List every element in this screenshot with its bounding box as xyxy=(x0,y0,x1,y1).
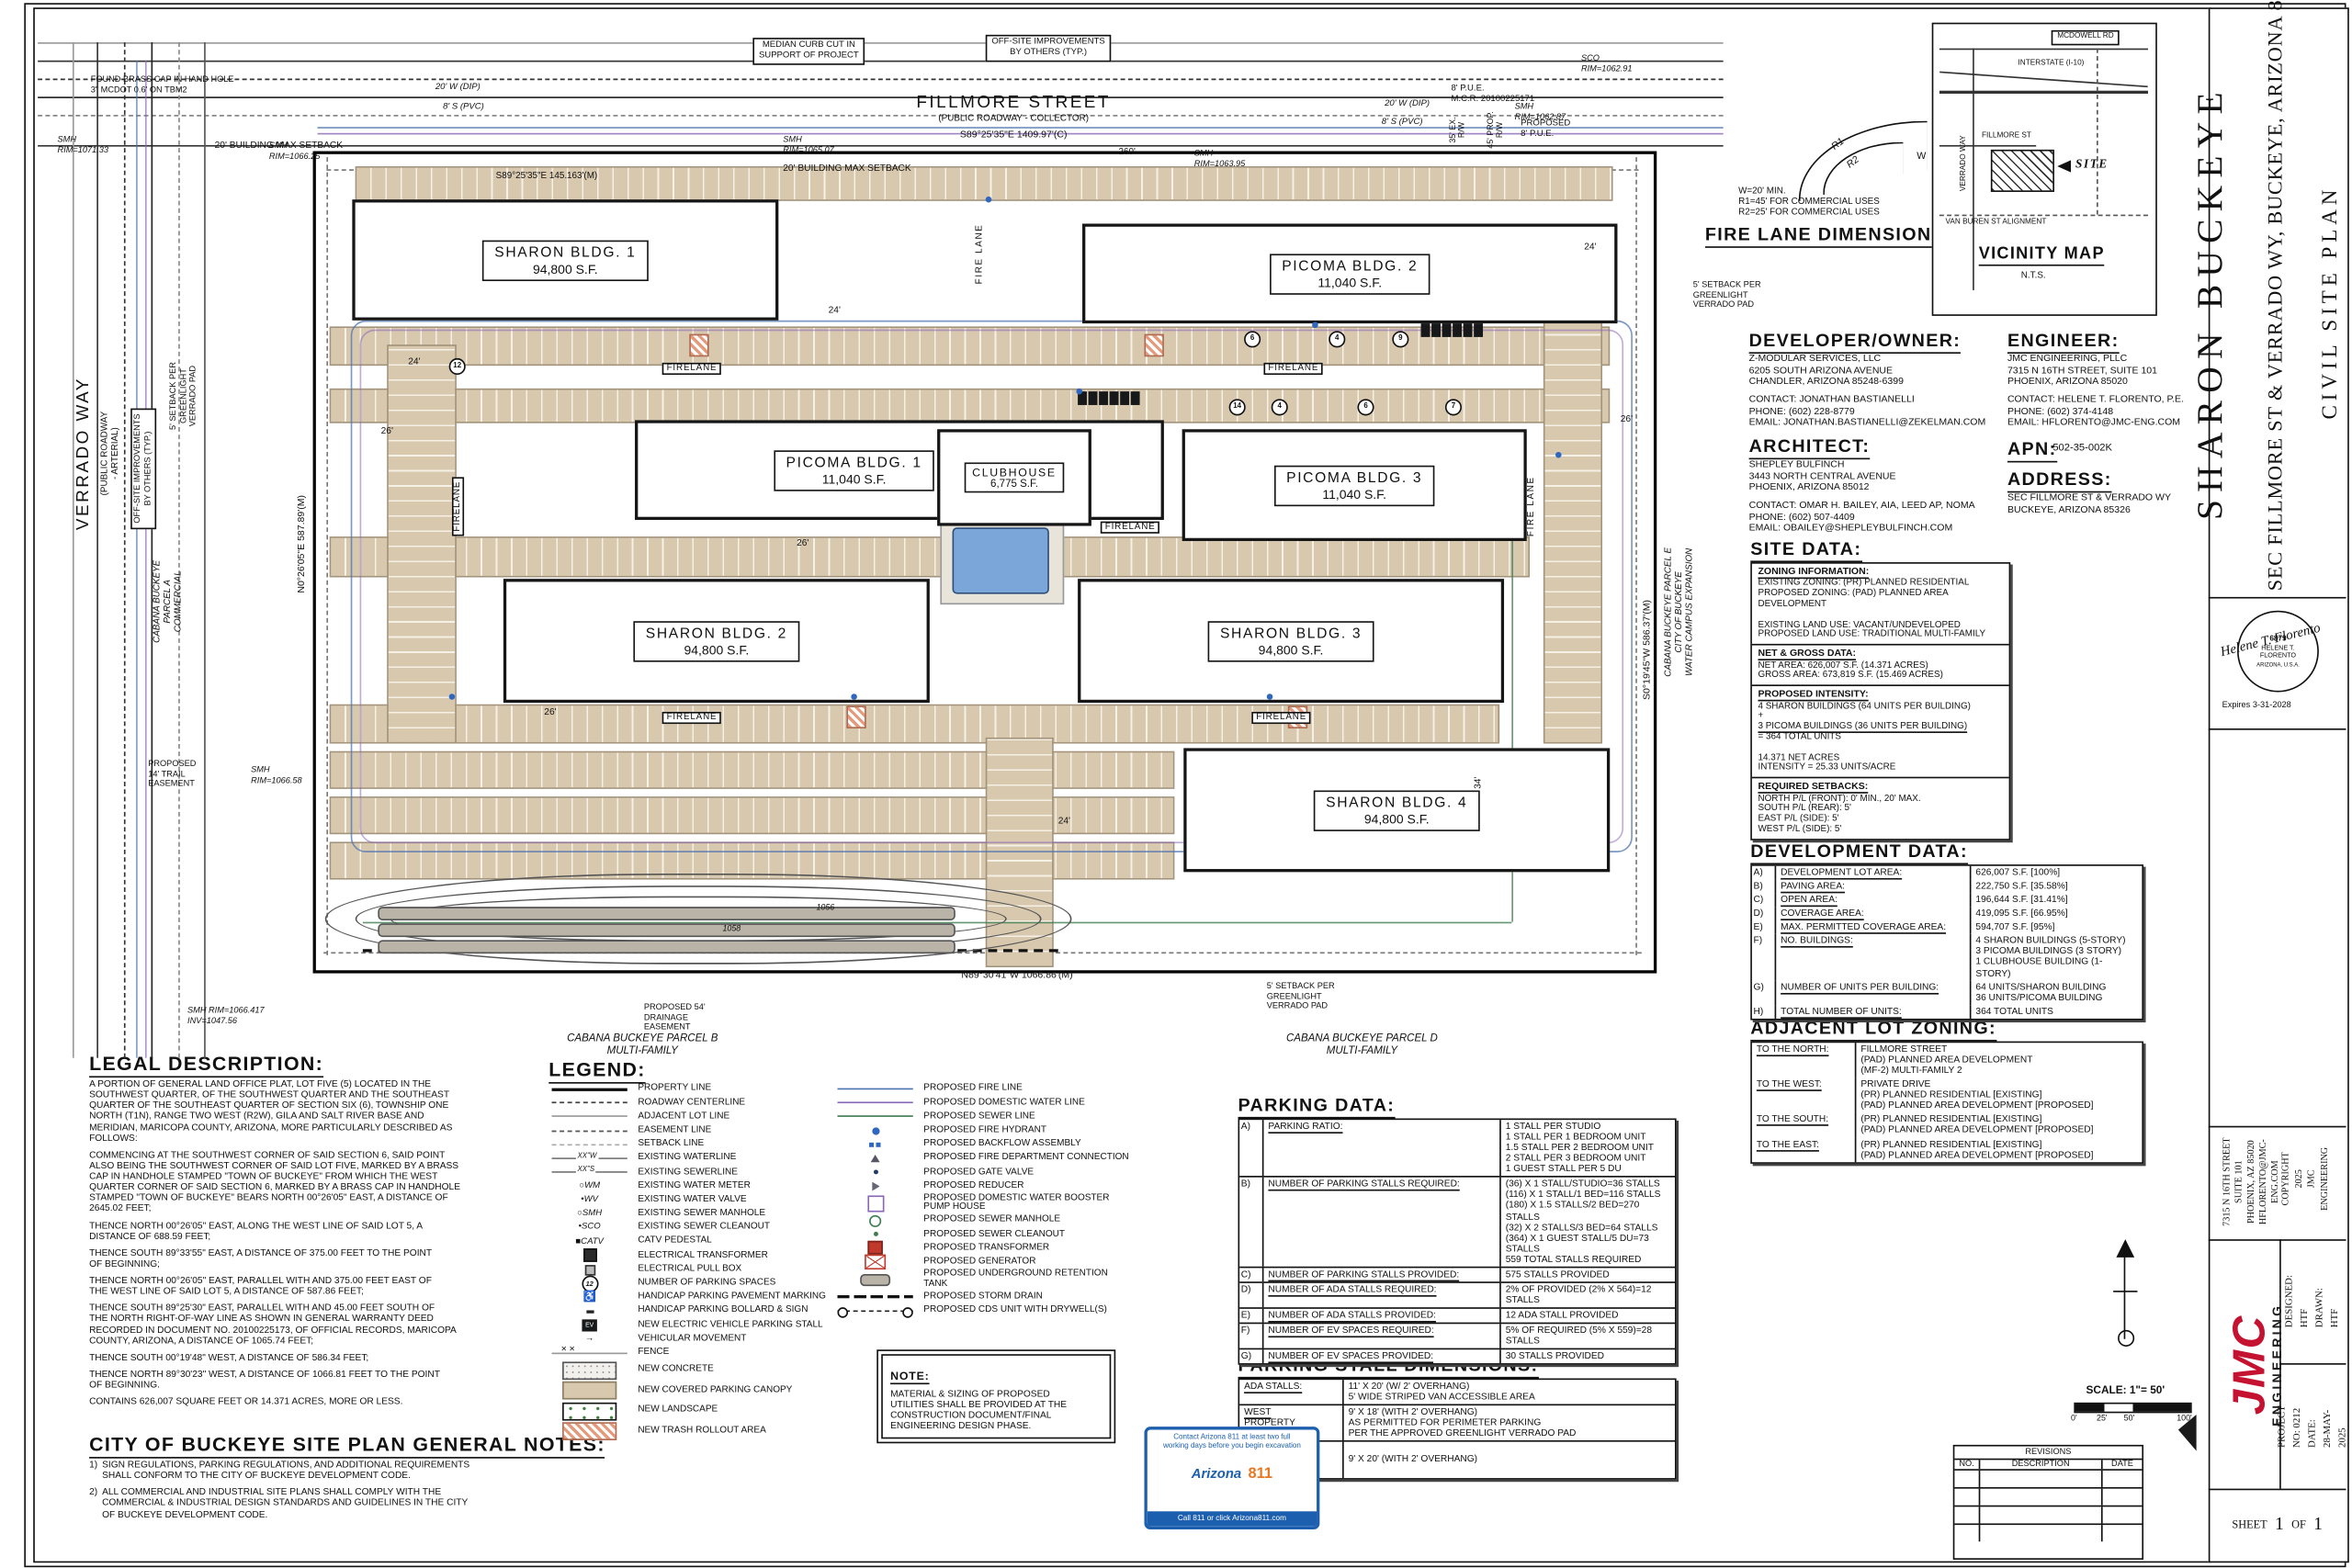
building-sharon-4: SHARON BLDG. 494,800 S.F. xyxy=(1183,748,1610,872)
logo-mountain-icon xyxy=(2178,1415,2197,1450)
scale-tick: 50' xyxy=(2124,1415,2135,1424)
site-data-heading: SITE DATA: xyxy=(1750,538,1861,562)
legend-row: PROPOSED TRANSFORMER xyxy=(834,1241,1190,1255)
legend-row: PROPOSED FIRE LINE xyxy=(834,1082,1190,1096)
title-divider xyxy=(2209,1239,2346,1241)
developer-address: Z-MODULAR SERVICES, LLC 6205 SOUTH ARIZO… xyxy=(1749,354,1904,388)
new-concrete-swatch xyxy=(562,1361,616,1380)
vicinity-title: VICINITY MAP xyxy=(1979,245,2105,266)
ev-stall-symbol: EV xyxy=(582,1319,596,1331)
plan-sheet: 1056 1058 SHARON BLDG. 194,800 S.F. PICO… xyxy=(0,0,2352,1568)
water-meter-symbol: ○WM xyxy=(579,1181,600,1190)
setback-label: 5' SETBACK PER GREENLIGHT VERRADO PAD xyxy=(1267,982,1335,1012)
plan-callout: OFF-SITE IMPROVEMENTS BY OTHERS (TYP.) xyxy=(130,408,156,529)
scale-tick: 25' xyxy=(2097,1415,2108,1424)
firm-address: 7315 N 16TH STREET SUITE 101 PHOENIX, AZ… xyxy=(2222,1132,2282,1232)
map-label: FILLMORE ST xyxy=(1982,133,2031,142)
existing-waterline-symbol: XX"W xyxy=(552,1157,628,1159)
building-label: PICOMA BLDG. 111,040 S.F. xyxy=(774,449,933,490)
logo-jmc-text: JMC xyxy=(2225,1314,2275,1415)
backflow-assembly-symbol xyxy=(868,1143,882,1147)
building-label: PICOMA BLDG. 211,040 S.F. xyxy=(1270,254,1430,294)
developer-heading: DEVELOPER/OWNER: xyxy=(1749,330,1962,354)
building-clubhouse: CLUBHOUSE6,775 S.F. xyxy=(937,429,1091,525)
row-label: 35' EX. R/W xyxy=(1449,117,1468,142)
firelane-label: FIRELANE xyxy=(1263,363,1323,375)
developer-contact: CONTACT: JONATHAN BASTIANELLI PHONE: (60… xyxy=(1749,394,1986,428)
arizona811-logo: Arizona 811 xyxy=(1148,1458,1317,1485)
stall-count: 4 xyxy=(1329,331,1345,347)
gate-valve-symbol xyxy=(873,1170,877,1175)
legend-row: PROPOSED CDS UNIT WITH DRYWELL(S) xyxy=(834,1303,1190,1317)
table-row: D)NUMBER OF ADA STALLS REQUIRED:2% OF PR… xyxy=(1239,1281,1675,1307)
map-road xyxy=(1973,49,1974,290)
road-line xyxy=(96,42,98,1058)
utility-label: 8' S (PVC) xyxy=(1382,118,1423,128)
utility-label: SMH RIM=1066.417 INV=1047.56 xyxy=(187,1007,265,1027)
dim-label: 34' xyxy=(1473,777,1484,789)
legend-row: NEW TRASH ROLLOUT AREA xyxy=(548,1421,919,1441)
firelane-label: FIRE LANE xyxy=(1528,476,1539,536)
easement-line-symbol xyxy=(552,1130,628,1132)
existing-sewerline-symbol: XX"S xyxy=(552,1171,628,1173)
map-label: INTERSTATE (I-10) xyxy=(2018,61,2084,70)
parcel-label: CABANA BUCKEYE PARCEL B MULTI-FAMILY xyxy=(544,1033,741,1058)
road-line xyxy=(204,42,206,1058)
water-valve-symbol: •WV xyxy=(581,1196,598,1205)
project-no-date: PROJECT NO: 0212 DATE: 28-MAY-2025 xyxy=(2276,1405,2350,1448)
title-divider xyxy=(2209,597,2346,599)
seal-expires: Expires 3-31-2028 xyxy=(2222,701,2291,710)
firelane-label: FIRELANE xyxy=(452,477,464,536)
dim-label: 26' xyxy=(544,707,556,718)
utility-label: 8' S (PVC) xyxy=(443,103,484,113)
building-label: SHARON BLDG. 194,800 S.F. xyxy=(482,240,649,280)
legend-row: EVNEW ELECTRIC VEHICLE PARKING STALL xyxy=(548,1318,919,1332)
utility-label: 20' W (DIP) xyxy=(1385,100,1430,110)
scale-tick: 0' xyxy=(2071,1415,2077,1424)
electrical-pull-box-symbol xyxy=(584,1264,595,1275)
utility-label: SMH RIM=1066.25 xyxy=(269,142,321,163)
trash-rollout-area xyxy=(689,334,708,357)
revision-row xyxy=(1954,1525,2142,1541)
setback-label: 20' BUILDING MAX SETBACK xyxy=(783,164,910,175)
bearing-label: N89°30'41"W 1066.86'(M) xyxy=(961,970,1072,981)
building-label: SHARON BLDG. 294,800 S.F. xyxy=(634,620,800,660)
table-row: E)MAX. PERMITTED COVERAGE AREA:594,707 S… xyxy=(1752,920,2142,934)
utility-label: SMH RIM=1065.07 xyxy=(783,136,834,156)
fire-hydrant-icon xyxy=(986,197,992,203)
scale-bar xyxy=(2074,1403,2191,1414)
building-picoma-2: PICOMA BLDG. 211,040 S.F. xyxy=(1082,224,1617,324)
title-divider xyxy=(2279,1363,2346,1365)
proposed-fire-line xyxy=(318,127,1724,129)
table-row: B)NUMBER OF PARKING STALLS REQUIRED:(36)… xyxy=(1239,1177,1675,1267)
legend-row: NEW CONCRETE xyxy=(548,1359,919,1380)
retention-tank xyxy=(378,923,955,937)
vehicular-movement-symbol: → xyxy=(585,1335,594,1344)
dim-label: 26' xyxy=(1621,414,1633,425)
bearing-label: S89°25'35"E 1409.97'(C) xyxy=(888,130,1137,141)
architect-contact: CONTACT: OMAR H. BAILEY, AIA, LEED AP, N… xyxy=(1749,501,1975,535)
parking-data-heading: PARKING DATA: xyxy=(1238,1094,1396,1118)
easement-label: PROPOSED 14' TRAIL EASEMENT xyxy=(148,761,196,791)
general-notes-heading: CITY OF BUCKEYE SITE PLAN GENERAL NOTES: xyxy=(89,1433,605,1459)
note-box: NOTE: MATERIAL & SIZING OF PROPOSED UTIL… xyxy=(881,1354,1111,1438)
proposed-domestic-water-line-symbol xyxy=(837,1102,912,1104)
building-label: PICOMA BLDG. 311,040 S.F. xyxy=(1274,465,1434,505)
proposed-sewer-line-symbol xyxy=(837,1116,912,1118)
apn-label: APN: xyxy=(2007,438,2057,462)
fence-symbol: ✕ ✕ xyxy=(552,1352,628,1354)
table-row: ADA STALLS:11' X 20' (W/ 2' OVERHANG) 5'… xyxy=(1239,1380,1675,1404)
catv-pedestal-symbol: ■CATV xyxy=(575,1237,603,1247)
revision-row xyxy=(1954,1506,2142,1525)
firelane-label: FIRELANE xyxy=(662,363,722,375)
map-road xyxy=(1939,215,2148,217)
contour-label: 1056 xyxy=(816,904,834,913)
dim-label: 26' xyxy=(381,426,393,437)
legend-row: NEW LANDSCAPE xyxy=(548,1401,919,1421)
legend-right-column: PROPOSED FIRE LINE PROPOSED DOMESTIC WAT… xyxy=(834,1082,1190,1317)
map-road xyxy=(1939,91,2148,94)
revision-row xyxy=(1954,1489,2142,1507)
building-sharon-2: SHARON BLDG. 294,800 S.F. xyxy=(503,579,930,703)
legend-row: PROPOSED UNDERGROUND RETENTION TANK xyxy=(834,1269,1190,1290)
trash-rollout-swatch xyxy=(562,1422,616,1440)
map-road xyxy=(1939,145,2036,147)
legend-row: ✕ ✕FENCE xyxy=(548,1346,919,1359)
fire-hydrant-icon xyxy=(1555,452,1562,458)
table-row: A)DEVELOPMENT LOT AREA:626,007 S.F. [100… xyxy=(1752,866,2142,880)
map-label: VAN BUREN ST ALIGNMENT xyxy=(1946,220,2047,229)
sewer-manhole-symbol: ○SMH xyxy=(577,1210,602,1219)
table-row: F)NUMBER OF EV SPACES REQUIRED:5% OF REQ… xyxy=(1239,1323,1675,1348)
ev-stalls xyxy=(1078,391,1139,405)
map-road xyxy=(1939,49,2148,51)
plan-callout: MEDIAN CURB CUT IN SUPPORT OF PROJECT xyxy=(752,38,865,64)
setback-label: 5' SETBACK PER GREENLIGHT VERRADO PAD xyxy=(169,362,199,430)
fire-hydrant-symbol xyxy=(872,1127,879,1134)
firelane-label: FIRELANE xyxy=(1101,522,1160,534)
road-line xyxy=(178,42,180,1058)
title-text: SHARON BUCKEYE SEC FILLMORE ST & VERRADO… xyxy=(2164,14,2352,592)
setback-label: 5' SETBACK PER GREENLIGHT VERRADO PAD xyxy=(1693,281,1761,311)
vicinity-nts: N.T.S. xyxy=(2021,272,2046,283)
building-sharon-3: SHARON BLDG. 394,800 S.F. xyxy=(1078,579,1504,703)
row-label: 45' PROP. R/W xyxy=(1487,111,1506,148)
retention-tank xyxy=(378,907,955,920)
bearing-label: N0°26'05"E 587.89'(M) xyxy=(297,495,308,593)
dim-label: 24' xyxy=(1584,242,1596,253)
fire-lane-heading: FIRE LANE DIMENSIONS xyxy=(1705,224,1945,248)
roadway-centerline-symbol xyxy=(552,1102,628,1104)
map-road xyxy=(1939,72,2148,87)
legend-row: PROPOSED STORM DRAIN xyxy=(834,1290,1190,1303)
bearing-label: S0°19'45"W 586.37'(M) xyxy=(1642,600,1653,700)
proposed-sewer-cleanout-symbol xyxy=(873,1232,877,1236)
project-title: SHARON BUCKEYE xyxy=(2191,14,2232,592)
legend-row: PROPOSED FIRE HYDRANT xyxy=(834,1123,1190,1137)
setback-line xyxy=(1635,157,1637,955)
firelane-label: FIRELANE xyxy=(662,712,722,724)
table-row: TO THE SOUTH:(PR) PLANNED RESIDENTIAL [E… xyxy=(1752,1113,2142,1138)
legend-row: PROPOSED REDUCER xyxy=(834,1179,1190,1193)
table-row: TO THE WEST:PRIVATE DRIVE (PR) PLANNED R… xyxy=(1752,1077,2142,1112)
street-type: (PUBLIC ROADWAY - ARTERIAL) xyxy=(101,412,122,496)
table-row: A)PARKING RATIO:1 STALL PER STUDIO 1 STA… xyxy=(1239,1120,1675,1176)
proposed-transformer-symbol xyxy=(867,1242,882,1256)
table-row: H)TOTAL NUMBER OF UNITS:364 TOTAL UNITS xyxy=(1752,1005,2142,1019)
parcel-label: CABANA BUCKEYE PARCEL A COMMERCIAL xyxy=(153,560,186,643)
proposed-fire-line xyxy=(136,61,138,1058)
intensity-section: PROPOSED INTENSITY: 4 SHARON BUILDINGS (… xyxy=(1752,685,2009,778)
setbacks-section: REQUIRED SETBACKS: NORTH P/L (FRONT): 0'… xyxy=(1752,777,2009,839)
site-data-table: ZONING INFORMATION: EXISTING ZONING: (PR… xyxy=(1750,562,2010,840)
proposed-water-line xyxy=(145,61,147,1058)
engineer-address: JMC ENGINEERING, PLLC 7315 N 16TH STREET… xyxy=(2007,354,2157,388)
pool xyxy=(953,527,1049,593)
proposed-fire-line-symbol xyxy=(837,1089,912,1090)
street-name: VERRADO WAY xyxy=(74,377,95,530)
table-row: B)PAVING AREA:222,750 S.F. [35.58%] xyxy=(1752,880,2142,894)
building-picoma-3: PICOMA BLDG. 311,040 S.F. xyxy=(1182,429,1527,541)
utility-label: SMH RIM=1063.95 xyxy=(1194,150,1246,170)
table-row: C)NUMBER OF PARKING STALLS PROVIDED:575 … xyxy=(1239,1266,1675,1281)
property-line-symbol xyxy=(552,1088,628,1090)
map-label: MCDOWELL RD xyxy=(2052,30,2120,45)
table-row: G)NUMBER OF UNITS PER BUILDING:64 UNITS/… xyxy=(1752,980,2142,1005)
building-label: SHARON BLDG. 394,800 S.F. xyxy=(1208,620,1374,660)
engineer-heading: ENGINEER: xyxy=(2007,330,2120,354)
underground-retention-tank-symbol xyxy=(860,1273,890,1285)
site-arrow-icon xyxy=(2057,160,2071,172)
sheet-number-row: SHEET 1 OF 1 xyxy=(2209,1489,2346,1560)
fire-hydrant-icon xyxy=(1267,694,1273,700)
revision-row xyxy=(1954,1471,2142,1489)
dim-label: 24' xyxy=(408,356,420,367)
utility-label: SMH RIM=1071.33 xyxy=(58,136,109,156)
title-divider xyxy=(2209,728,2346,730)
fire-dept-connection-symbol xyxy=(871,1155,880,1162)
road-line xyxy=(152,42,153,1058)
table-row: E)NUMBER OF ADA STALLS PROVIDED:12 ADA S… xyxy=(1239,1307,1675,1323)
firelane-label: FIRELANE xyxy=(1251,712,1311,724)
development-data-table: A)DEVELOPMENT LOT AREA:626,007 S.F. [100… xyxy=(1750,864,2143,1020)
sheet-name: CIVIL SITE PLAN xyxy=(2320,14,2344,592)
legend-row: PROPOSED DOMESTIC WATER BOOSTER PUMP HOU… xyxy=(834,1193,1190,1213)
table-row: TO THE EAST:(PR) PLANNED RESIDENTIAL [EX… xyxy=(1752,1137,2142,1162)
parcel-label: CABANA BUCKEYE PARCEL D MULTI-FAMILY xyxy=(1263,1033,1460,1058)
table-row: F)NO. BUILDINGS:4 SHARON BUILDINGS (5-ST… xyxy=(1752,934,2142,980)
adjacent-zoning-heading: ADJACENT LOT ZONING: xyxy=(1750,1017,1996,1041)
easement-label: PROPOSED 54' DRAINAGE EASEMENT xyxy=(644,1003,706,1033)
stall-count: 12 xyxy=(449,358,466,375)
legend-row: PROPOSED SEWER CLEANOUT xyxy=(834,1227,1190,1241)
map-label: SITE xyxy=(2075,157,2109,172)
title-divider xyxy=(2209,1126,2346,1128)
dim-label: 24' xyxy=(1058,816,1070,827)
architect-heading: ARCHITECT: xyxy=(1749,435,1871,459)
legal-text: A PORTION OF GENERAL LAND OFFICE PLAT, L… xyxy=(89,1079,543,1414)
plan-callout: OFF-SITE IMPROVEMENTS BY OTHERS (TYP.) xyxy=(986,35,1112,62)
utility-label: 20' W (DIP) xyxy=(435,83,481,93)
adjacent-lot-line-symbol xyxy=(552,1116,628,1118)
plan-label: FOUND BRASS CAP IN HAND HOLE 3" MCDOT 0.… xyxy=(91,75,234,96)
fire-hydrant-icon xyxy=(1312,321,1318,328)
revisions-title: REVISIONS xyxy=(1954,1447,2142,1461)
adjacent-zoning-table: TO THE NORTH:FILLMORE STREET (PAD) PLANN… xyxy=(1750,1042,2143,1164)
road-line xyxy=(73,42,74,1058)
revisions-header: NO. DESCRIPTION DATE xyxy=(1954,1460,2142,1471)
street-type: (PUBLIC ROADWAY - COLLECTOR) xyxy=(888,115,1137,126)
firelane-label: FIRE LANE xyxy=(976,223,987,284)
legend-heading: LEGEND: xyxy=(548,1058,645,1084)
revisions-table: REVISIONS NO. DESCRIPTION DATE xyxy=(1953,1445,2143,1560)
general-notes: 1)SIGN REGULATIONS, PARKING REGULATIONS,… xyxy=(89,1460,572,1519)
handicap-marking-symbol: ♿ xyxy=(582,1292,595,1303)
vicinity-map: MCDOWELL RD INTERSTATE (I-10) VERRADO WA… xyxy=(1932,23,2157,316)
building-label: CLUBHOUSE6,775 S.F. xyxy=(965,462,1064,492)
fire-hydrant-icon xyxy=(449,694,456,700)
arc-label: W xyxy=(1917,152,1926,164)
new-landscape-swatch xyxy=(562,1402,616,1420)
proposed-generator-symbol xyxy=(865,1255,886,1269)
proposed-sewer-manhole-symbol xyxy=(869,1214,881,1226)
trash-rollout-area xyxy=(846,705,865,728)
fire-lane-notes: W=20' MIN. R1=45' FOR COMMERCIAL USES R2… xyxy=(1738,187,1880,220)
reducer-symbol xyxy=(872,1181,879,1190)
stall-count: 6 xyxy=(1244,331,1261,347)
parking-count-symbol: 12 xyxy=(582,1275,598,1292)
street-name: FILLMORE STREET xyxy=(888,94,1137,114)
map-label: VERRADO WAY xyxy=(1961,135,1970,191)
utility-label: SCO RIM=1062.91 xyxy=(1581,54,1633,74)
parcel-label: CABANA BUCKEYE PARCEL E CITY OF BUCKEYE … xyxy=(1665,547,1697,677)
stall-count: 6 xyxy=(1357,399,1374,415)
legend-row: PROPOSED FIRE DEPARTMENT CONNECTION xyxy=(834,1152,1190,1166)
road-line xyxy=(38,115,1724,117)
road-line xyxy=(38,61,1724,62)
arizona811-box: Contact Arizona 811 at least two full wo… xyxy=(1144,1427,1319,1529)
booster-pump-house-symbol xyxy=(867,1195,884,1212)
cds-unit-symbol xyxy=(837,1310,912,1312)
road-centerline xyxy=(38,79,1724,81)
legend-row: →VEHICULAR MOVEMENT xyxy=(548,1332,919,1346)
map-road xyxy=(2097,49,2098,215)
retention-tank xyxy=(378,940,955,953)
zoning-section: ZONING INFORMATION: EXISTING ZONING: (PR… xyxy=(1752,564,2009,645)
address-heading: ADDRESS: xyxy=(2007,468,2112,492)
designed-drawn: DESIGNED: HTF DRAWN: HTF xyxy=(2283,1275,2343,1327)
setback-line xyxy=(326,157,328,955)
bearing-label: S89°25'35"E 145.163'(M) xyxy=(496,173,598,184)
trash-rollout-area xyxy=(1144,334,1163,357)
utility-label: SMH RIM=1062.87 xyxy=(1515,103,1566,123)
table-row: G)NUMBER OF EV SPACES PROVIDED:30 STALLS… xyxy=(1239,1348,1675,1364)
stall-count: 7 xyxy=(1445,399,1462,415)
electrical-transformer-symbol xyxy=(582,1249,596,1263)
stall-count: 9 xyxy=(1392,331,1408,347)
building-sharon-1: SHARON BLDG. 194,800 S.F. xyxy=(352,199,778,321)
fire-hydrant-icon xyxy=(1076,389,1082,395)
stall-count: 4 xyxy=(1272,399,1288,415)
firm-copyright: COPYRIGHT 2025 JMC ENGINEERING xyxy=(2280,1147,2333,1211)
table-row: C)OPEN AREA:196,644 S.F. [31.41%] xyxy=(1752,894,2142,908)
dim-label: 24' xyxy=(829,305,841,316)
dim-label: 260' xyxy=(1119,148,1136,159)
fire-hydrant-icon xyxy=(851,694,857,700)
legend-row: PROPOSED GATE VALVE xyxy=(834,1166,1190,1179)
apn-value: 502-35-002K xyxy=(2052,443,2112,455)
legend-row: NEW COVERED PARKING CANOPY xyxy=(548,1381,919,1401)
table-row: TO THE NORTH:FILLMORE STREET (PAD) PLANN… xyxy=(1752,1043,2142,1077)
legend-row: PROPOSED SEWER LINE xyxy=(834,1110,1190,1123)
storm-drain-symbol xyxy=(837,1294,912,1298)
contour-label: 1058 xyxy=(722,925,741,934)
architect-address: SHEPLEY BULFINCH 3443 NORTH CENTRAL AVEN… xyxy=(1749,459,1896,493)
ev-stalls xyxy=(1421,323,1483,337)
north-arrow-icon xyxy=(2110,1239,2141,1348)
building-label: SHARON BLDG. 494,800 S.F. xyxy=(1314,790,1480,830)
engineer-contact: CONTACT: HELENE T. FLORENTO, P.E. PHONE:… xyxy=(2007,394,2184,428)
setback-line-symbol xyxy=(552,1144,628,1145)
legend-row: PROPOSED GENERATOR xyxy=(834,1256,1190,1269)
scale-label: SCALE: 1"= 50' xyxy=(2086,1384,2165,1397)
sewer-cleanout-symbol: •SCO xyxy=(579,1224,601,1233)
parking-data-table: A)PARKING RATIO:1 STALL PER STUDIO 1 STA… xyxy=(1238,1119,1677,1366)
road-centerline xyxy=(124,42,126,1058)
development-data-heading: DEVELOPMENT DATA: xyxy=(1750,840,1968,864)
dim-label: 26' xyxy=(797,538,808,549)
map-site xyxy=(1991,150,2054,192)
legend-row: PROPOSED BACKFLOW ASSEMBLY xyxy=(834,1137,1190,1151)
utility-label: SMH RIM=1066.58 xyxy=(251,766,302,786)
legend-row: PROPOSED SEWER MANHOLE xyxy=(834,1213,1190,1227)
legend-row: PROPOSED DOMESTIC WATER LINE xyxy=(834,1096,1190,1110)
project-subtitle: SEC FILLMORE ST & VERRADO WY, BUCKEYE, A… xyxy=(2264,14,2288,592)
table-row: D)COVERAGE AREA:419,095 S.F. [66.95%] xyxy=(1752,907,2142,920)
covered-parking-canopy-swatch xyxy=(562,1382,616,1400)
handicap-bollard-symbol xyxy=(586,1310,594,1313)
road-line xyxy=(38,42,1724,44)
address-lines: SEC FILLMORE ST & VERRADO WY BUCKEYE, AR… xyxy=(2007,492,2171,515)
stall-count: 14 xyxy=(1229,399,1246,415)
net-gross-section: NET & GROSS DATA: NET AREA: 626,007 S.F.… xyxy=(1752,644,2009,684)
